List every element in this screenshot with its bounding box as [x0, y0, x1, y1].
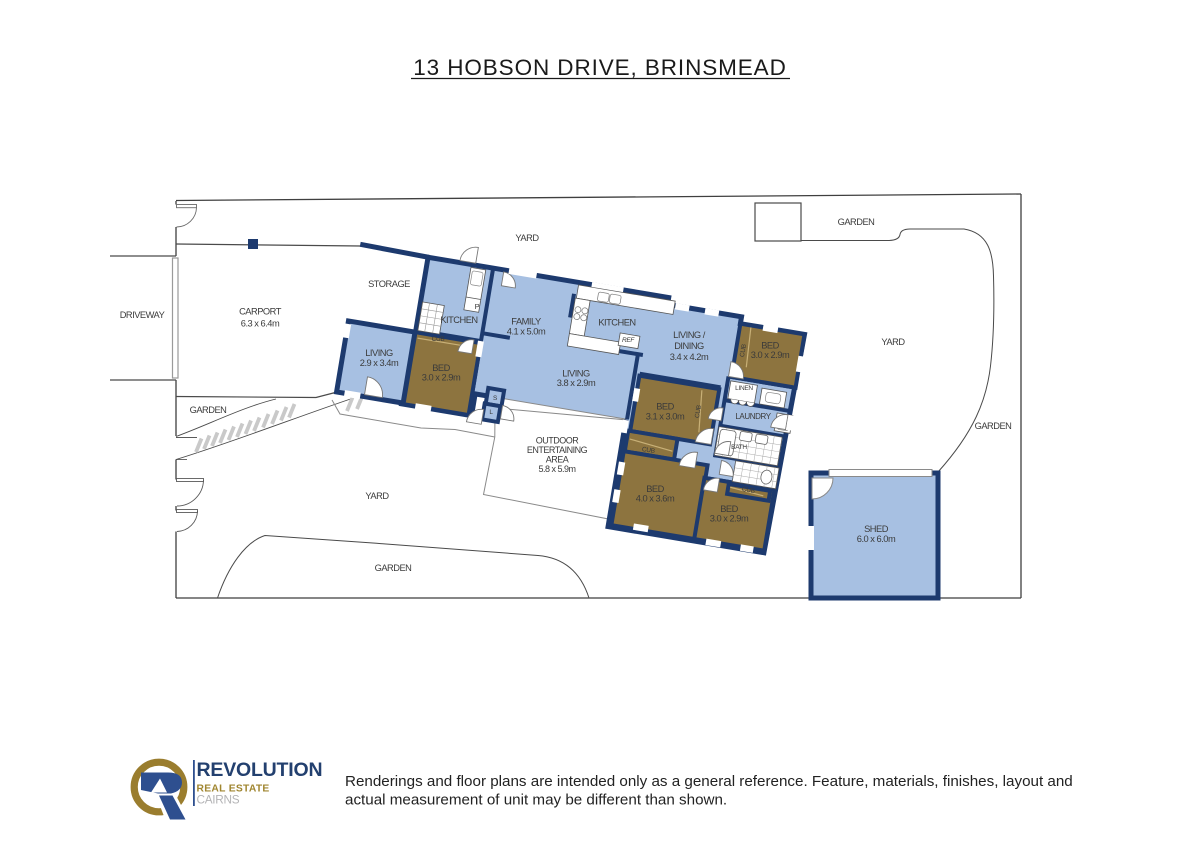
svg-text:DRIVEWAY: DRIVEWAY: [120, 310, 165, 320]
svg-text:GARDEN: GARDEN: [838, 217, 875, 227]
svg-text:BED: BED: [761, 341, 779, 351]
svg-text:4.0 x 3.6m: 4.0 x 3.6m: [636, 494, 675, 504]
svg-text:13 HOBSON DRIVE, BRINSMEAD: 13 HOBSON DRIVE, BRINSMEAD: [413, 55, 786, 80]
svg-text:SHED: SHED: [864, 524, 889, 534]
svg-text:REF: REF: [622, 337, 635, 344]
svg-text:LIVING: LIVING: [365, 348, 393, 358]
svg-text:BED: BED: [646, 484, 664, 494]
svg-text:FAMILY: FAMILY: [511, 317, 541, 327]
svg-text:LIVING: LIVING: [562, 369, 590, 379]
svg-text:STORAGE: STORAGE: [368, 279, 410, 289]
svg-text:AREA: AREA: [546, 455, 569, 465]
svg-text:3.0 x 2.9m: 3.0 x 2.9m: [422, 373, 461, 383]
svg-text:YARD: YARD: [881, 337, 905, 347]
svg-text:BED: BED: [432, 363, 450, 373]
svg-text:YARD: YARD: [515, 233, 539, 243]
svg-text:CUB: CUB: [432, 336, 445, 343]
svg-text:LIVING /: LIVING /: [673, 330, 706, 340]
svg-text:4.1 x 5.0m: 4.1 x 5.0m: [507, 327, 546, 337]
svg-text:CAIRNS: CAIRNS: [197, 793, 240, 807]
svg-text:GARDEN: GARDEN: [190, 405, 227, 415]
svg-text:KITCHEN: KITCHEN: [598, 317, 635, 327]
svg-text:P: P: [475, 302, 480, 311]
svg-text:GARDEN: GARDEN: [975, 421, 1012, 431]
svg-text:3.1 x 3.0m: 3.1 x 3.0m: [646, 412, 685, 422]
svg-text:KITCHEN: KITCHEN: [440, 315, 477, 325]
svg-text:3.8 x 2.9m: 3.8 x 2.9m: [557, 378, 596, 388]
svg-text:OUTDOOR: OUTDOOR: [536, 436, 579, 446]
svg-text:GARDEN: GARDEN: [375, 563, 412, 573]
svg-text:BED: BED: [656, 402, 674, 412]
svg-text:6.0 x 6.0m: 6.0 x 6.0m: [857, 534, 896, 544]
svg-text:3.4 x 4.2m: 3.4 x 4.2m: [670, 352, 709, 362]
svg-text:actual measurement of unit may: actual measurement of unit may be differ…: [345, 792, 727, 809]
svg-text:LAUNDRY: LAUNDRY: [735, 412, 771, 421]
svg-text:ENTERTAINING: ENTERTAINING: [527, 445, 588, 455]
svg-text:2.9 x 3.4m: 2.9 x 3.4m: [360, 358, 399, 368]
svg-text:BATH: BATH: [731, 444, 747, 451]
svg-text:5.8 x 5.9m: 5.8 x 5.9m: [538, 464, 575, 474]
svg-text:REVOLUTION: REVOLUTION: [197, 759, 323, 781]
svg-text:6.3 x 6.4m: 6.3 x 6.4m: [241, 319, 280, 329]
svg-text:LINEN: LINEN: [735, 385, 753, 392]
svg-text:3.0 x 2.9m: 3.0 x 2.9m: [751, 350, 790, 360]
svg-text:YARD: YARD: [365, 491, 389, 501]
svg-text:BED: BED: [720, 504, 738, 514]
svg-text:DINING: DINING: [674, 341, 704, 351]
svg-text:CARPORT: CARPORT: [239, 307, 282, 317]
svg-text:Renderings and floor plans are: Renderings and floor plans are intended …: [345, 773, 1073, 790]
svg-text:3.0 x 2.9m: 3.0 x 2.9m: [710, 514, 749, 524]
